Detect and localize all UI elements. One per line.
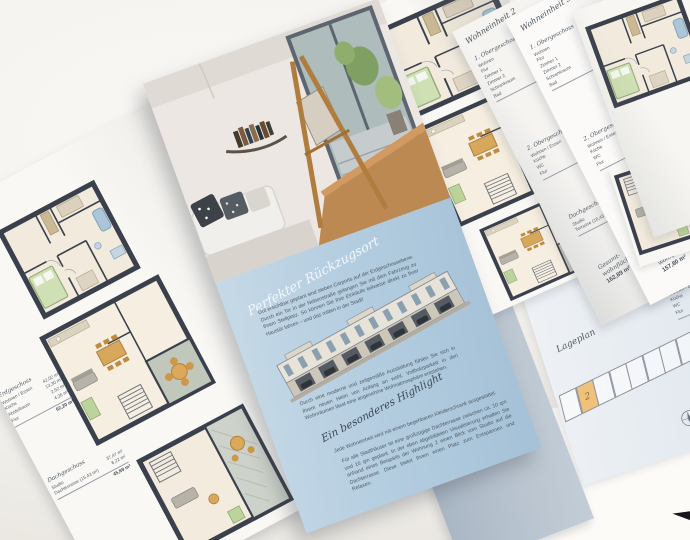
room-list-dg: Dachgeschoss Studio37,47 m² Dachterrasse… bbox=[47, 441, 133, 507]
compass-rose-icon bbox=[678, 407, 690, 430]
brochure-photo-scene: Plan Lageplan 2 2. Obergeschoss Wohnen /… bbox=[0, 0, 690, 540]
plot-number: 2 bbox=[583, 391, 591, 403]
compass-north-icon bbox=[670, 491, 690, 540]
siteplan-heading: Lageplan bbox=[555, 328, 597, 356]
